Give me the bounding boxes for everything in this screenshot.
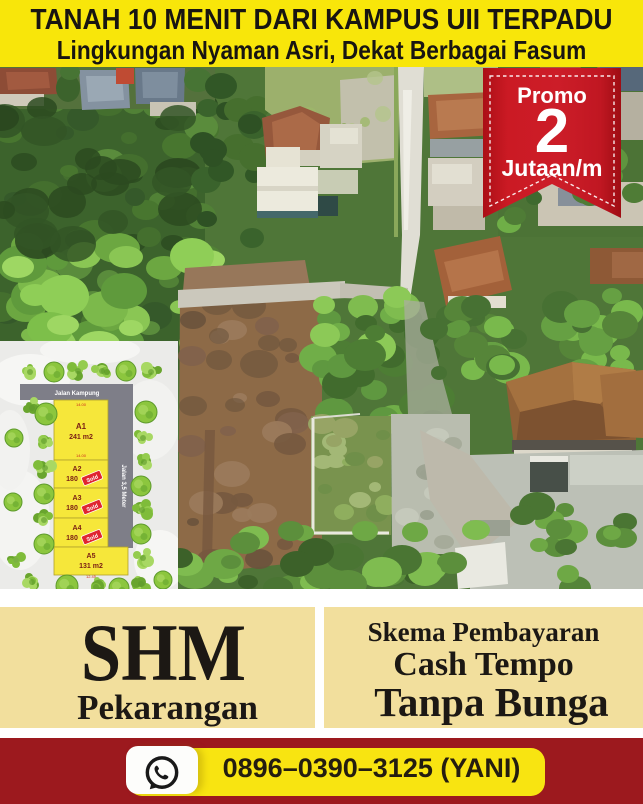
svg-text:A1: A1 — [76, 422, 87, 431]
svg-text:A5: A5 — [87, 553, 96, 560]
svg-text:14.00: 14.00 — [76, 402, 87, 407]
svg-text:A2: A2 — [73, 466, 82, 473]
svg-text:Jalan Kampung: Jalan Kampung — [55, 391, 100, 397]
svg-text:180: 180 — [66, 535, 78, 542]
svg-text:Jalan 3,5 Meter: Jalan 3,5 Meter — [120, 464, 126, 508]
svg-text:Jutaan/m: Jutaan/m — [502, 155, 603, 181]
svg-text:241 m2: 241 m2 — [69, 434, 93, 441]
svg-text:A4: A4 — [73, 525, 82, 532]
svg-text:131 m2: 131 m2 — [79, 563, 103, 570]
svg-text:A3: A3 — [73, 495, 82, 502]
svg-text:180: 180 — [66, 505, 78, 512]
svg-text:14.00: 14.00 — [76, 453, 87, 458]
svg-text:180: 180 — [66, 476, 78, 483]
